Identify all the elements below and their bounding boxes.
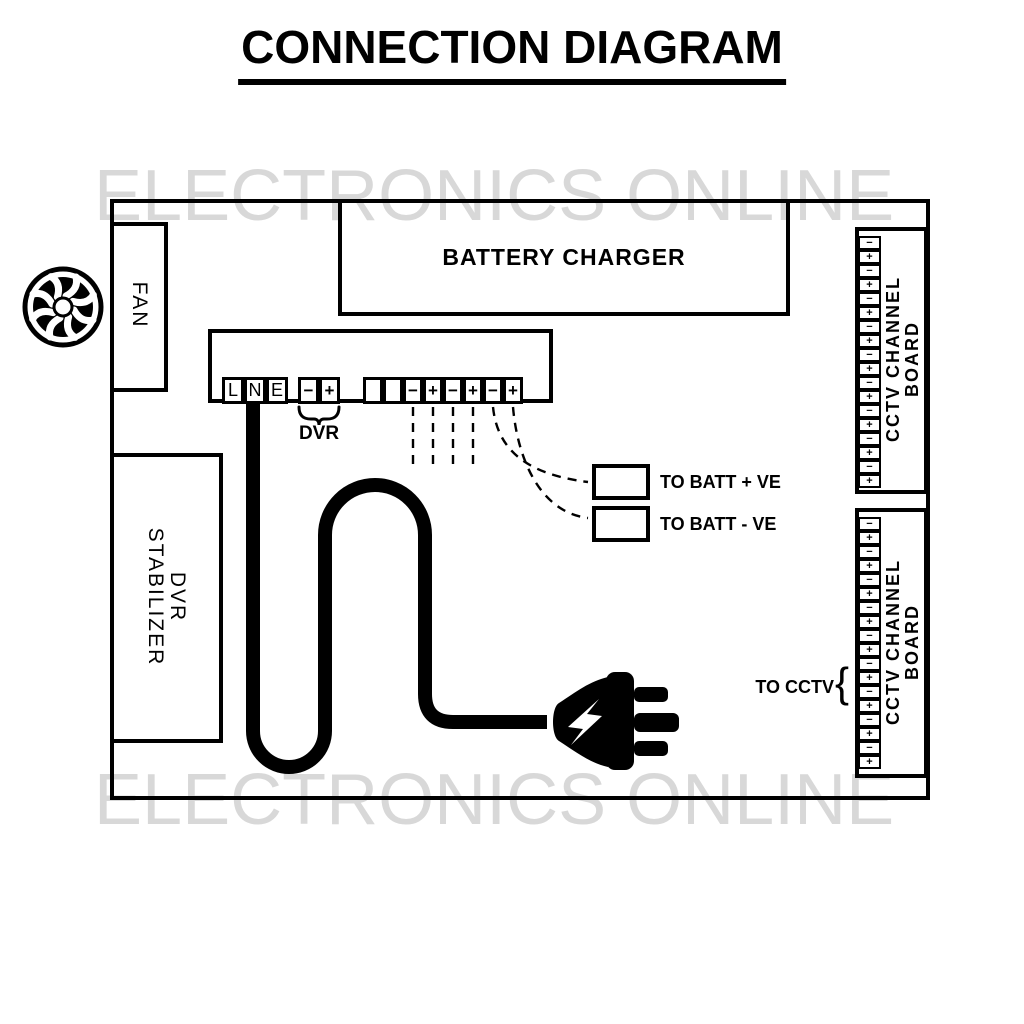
dvr-stabilizer-line1: DVR: [166, 467, 188, 727]
to-batt-negative-box: [592, 506, 650, 542]
terminal-cell: +: [423, 377, 443, 404]
terminal-cell: −: [858, 264, 881, 278]
terminal-cell: −: [483, 377, 503, 404]
terminal-cell: +: [858, 615, 881, 629]
terminal-cell: +: [858, 559, 881, 573]
terminal-cell: −: [858, 713, 881, 727]
cctv-board-label-bottom: CCTV CHANNEL BOARD: [884, 512, 922, 772]
cctv-terminal-column-top: −+−+−+−+−+−+−+−+−+: [858, 236, 881, 488]
terminal-cell: −: [858, 741, 881, 755]
terminal-cell: +: [858, 474, 881, 488]
terminal-cell: +: [858, 699, 881, 713]
battery-charger-box: BATTERY CHARGER: [338, 199, 790, 316]
to-cctv-brace: {: [835, 662, 849, 704]
terminal-cell: −: [858, 685, 881, 699]
terminal-cell: +: [858, 390, 881, 404]
terminal-cell: +: [858, 531, 881, 545]
terminal-cell: +: [858, 306, 881, 320]
dvr-stabilizer-line2: STABILIZER: [144, 467, 166, 727]
cctv-board-line2: BOARD: [903, 229, 922, 489]
terminal-cell: [363, 377, 383, 404]
output-terminal-group: −+−+−+: [363, 377, 523, 404]
terminal-cell: +: [858, 362, 881, 376]
terminal-cell: −: [858, 601, 881, 615]
terminal-cell: −: [858, 236, 881, 250]
terminal-cell: +: [858, 587, 881, 601]
terminal-cell: −: [858, 404, 881, 418]
terminal-cell: −: [403, 377, 423, 404]
terminal-cell: −: [858, 545, 881, 559]
terminal-cell: −: [298, 377, 319, 404]
terminal-cell: [383, 377, 403, 404]
terminal-cell: +: [463, 377, 483, 404]
terminal-cell: −: [858, 376, 881, 390]
terminal-cell: +: [319, 377, 340, 404]
terminal-cell: −: [443, 377, 463, 404]
terminal-cell: +: [858, 727, 881, 741]
terminal-cell: +: [858, 418, 881, 432]
fan-icon: [25, 269, 101, 345]
terminal-cell: −: [858, 573, 881, 587]
terminal-cell: +: [858, 278, 881, 292]
dvr-stabilizer-label: DVR STABILIZER: [144, 467, 188, 727]
terminal-cell: −: [858, 432, 881, 446]
terminal-cell: −: [858, 629, 881, 643]
to-batt-positive-label: TO BATT + VE: [660, 472, 781, 493]
terminal-cell: +: [858, 446, 881, 460]
to-batt-negative-label: TO BATT - VE: [660, 514, 776, 535]
page-title: CONNECTION DIAGRAM: [238, 20, 786, 85]
cctv-board-label-top: CCTV CHANNEL BOARD: [884, 229, 922, 489]
cctv-terminal-column-bottom: −+−+−+−+−+−+−+−+−+: [858, 517, 881, 769]
cctv-board-line1: CCTV CHANNEL: [884, 512, 903, 772]
cctv-board-line1: CCTV CHANNEL: [884, 229, 903, 489]
terminal-cell: −: [858, 460, 881, 474]
terminal-cell: +: [858, 755, 881, 769]
terminal-cell: −: [858, 348, 881, 362]
terminal-cell: −: [858, 517, 881, 531]
terminal-cell: −: [858, 320, 881, 334]
to-batt-positive-box: [592, 464, 650, 500]
terminal-cell: −: [858, 292, 881, 306]
mains-terminal-group: LNE: [222, 377, 288, 404]
dvr-label: DVR: [294, 423, 344, 445]
fan-label: FAN: [127, 245, 151, 365]
terminal-cell: +: [858, 671, 881, 685]
terminal-cell: +: [503, 377, 523, 404]
terminal-cell: −: [858, 657, 881, 671]
terminal-cell: N: [244, 377, 266, 404]
battery-charger-label: BATTERY CHARGER: [442, 244, 685, 271]
to-cctv-label: TO CCTV: [748, 677, 834, 698]
cctv-board-line2: BOARD: [903, 512, 922, 772]
terminal-cell: E: [266, 377, 288, 404]
dvr-terminal-group: −+: [298, 377, 340, 404]
terminal-cell: +: [858, 250, 881, 264]
terminal-cell: +: [858, 334, 881, 348]
terminal-cell: +: [858, 643, 881, 657]
terminal-cell: L: [222, 377, 244, 404]
